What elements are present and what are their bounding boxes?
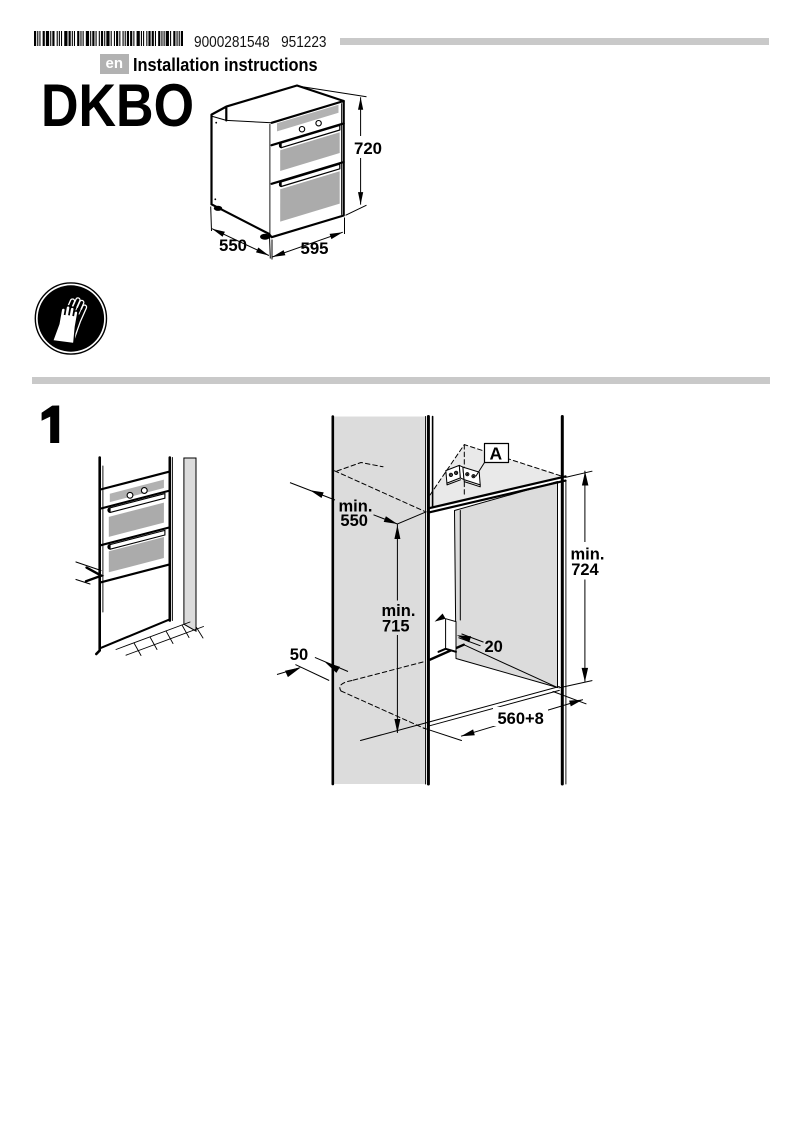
svg-text:20: 20 xyxy=(485,638,503,656)
svg-text:560+8: 560+8 xyxy=(498,710,544,728)
svg-text:550: 550 xyxy=(340,512,368,530)
svg-text:550: 550 xyxy=(219,236,247,255)
svg-text:595: 595 xyxy=(301,239,329,258)
svg-text:A: A xyxy=(490,444,503,464)
svg-text:50: 50 xyxy=(290,646,308,664)
svg-text:715: 715 xyxy=(382,618,410,636)
svg-text:724: 724 xyxy=(571,561,599,579)
svg-text:720: 720 xyxy=(354,139,382,158)
